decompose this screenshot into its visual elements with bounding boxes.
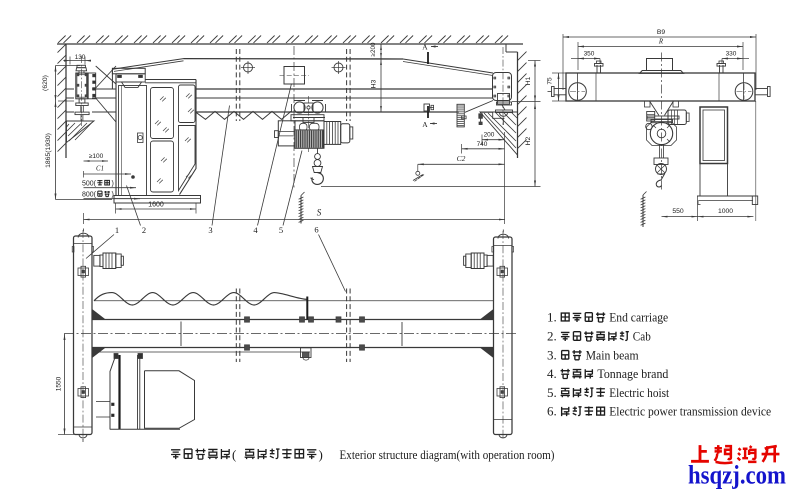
svg-text:H1: H1 — [525, 76, 532, 85]
svg-text:hsqzj.com: hsqzj.com — [688, 461, 786, 490]
svg-text:5: 5 — [279, 225, 283, 235]
svg-text:Exterior structure diagram(wit: Exterior structure diagram(with operatio… — [340, 447, 555, 462]
svg-text:(: ( — [232, 447, 236, 462]
svg-text:H3: H3 — [371, 79, 378, 88]
svg-text:1.: 1. — [547, 310, 557, 325]
svg-text:): ) — [319, 447, 323, 462]
svg-text:800(: 800( — [82, 192, 97, 199]
svg-text:A: A — [422, 43, 428, 52]
svg-text:): ) — [112, 192, 114, 199]
svg-text:2.: 2. — [547, 329, 557, 344]
svg-text:C1: C1 — [96, 166, 104, 173]
svg-text:5.: 5. — [547, 385, 557, 400]
svg-text:6.: 6. — [547, 404, 557, 419]
svg-text:4.: 4. — [547, 366, 557, 381]
svg-text:Tonnage brand: Tonnage brand — [597, 366, 668, 381]
svg-text:Cab: Cab — [633, 329, 651, 344]
svg-text:B9: B9 — [657, 29, 666, 36]
svg-text:1600: 1600 — [148, 202, 164, 209]
svg-text:500(: 500( — [82, 181, 97, 188]
svg-text:350: 350 — [584, 51, 595, 58]
svg-text:1550: 1550 — [56, 376, 63, 391]
svg-text:330: 330 — [726, 51, 737, 58]
svg-text:75: 75 — [547, 77, 554, 85]
svg-text:H2: H2 — [525, 136, 532, 145]
svg-text:(620): (620) — [42, 75, 49, 91]
svg-text:200: 200 — [484, 131, 495, 138]
svg-text:Electric power transmission de: Electric power transmission device — [609, 404, 771, 419]
svg-text:≥200: ≥200 — [370, 42, 377, 56]
svg-text:1000: 1000 — [718, 208, 733, 215]
svg-text:End carriage: End carriage — [609, 310, 668, 325]
svg-text:Electric hoist: Electric hoist — [609, 385, 669, 400]
svg-text:R: R — [658, 39, 664, 46]
svg-text:S: S — [317, 208, 322, 218]
svg-text:130: 130 — [75, 54, 86, 61]
svg-text:1: 1 — [115, 225, 119, 235]
svg-text:550: 550 — [672, 208, 684, 215]
svg-text:3.: 3. — [547, 347, 557, 362]
svg-text:3: 3 — [208, 225, 212, 235]
svg-text:2: 2 — [142, 225, 146, 235]
svg-text:≥100: ≥100 — [89, 153, 104, 160]
svg-text:A: A — [422, 120, 428, 129]
svg-text:1865(1930): 1865(1930) — [45, 133, 52, 168]
svg-text:6: 6 — [314, 225, 318, 235]
svg-text:Main beam: Main beam — [586, 347, 639, 362]
svg-text:C2: C2 — [457, 154, 466, 163]
svg-text:): ) — [112, 181, 114, 188]
